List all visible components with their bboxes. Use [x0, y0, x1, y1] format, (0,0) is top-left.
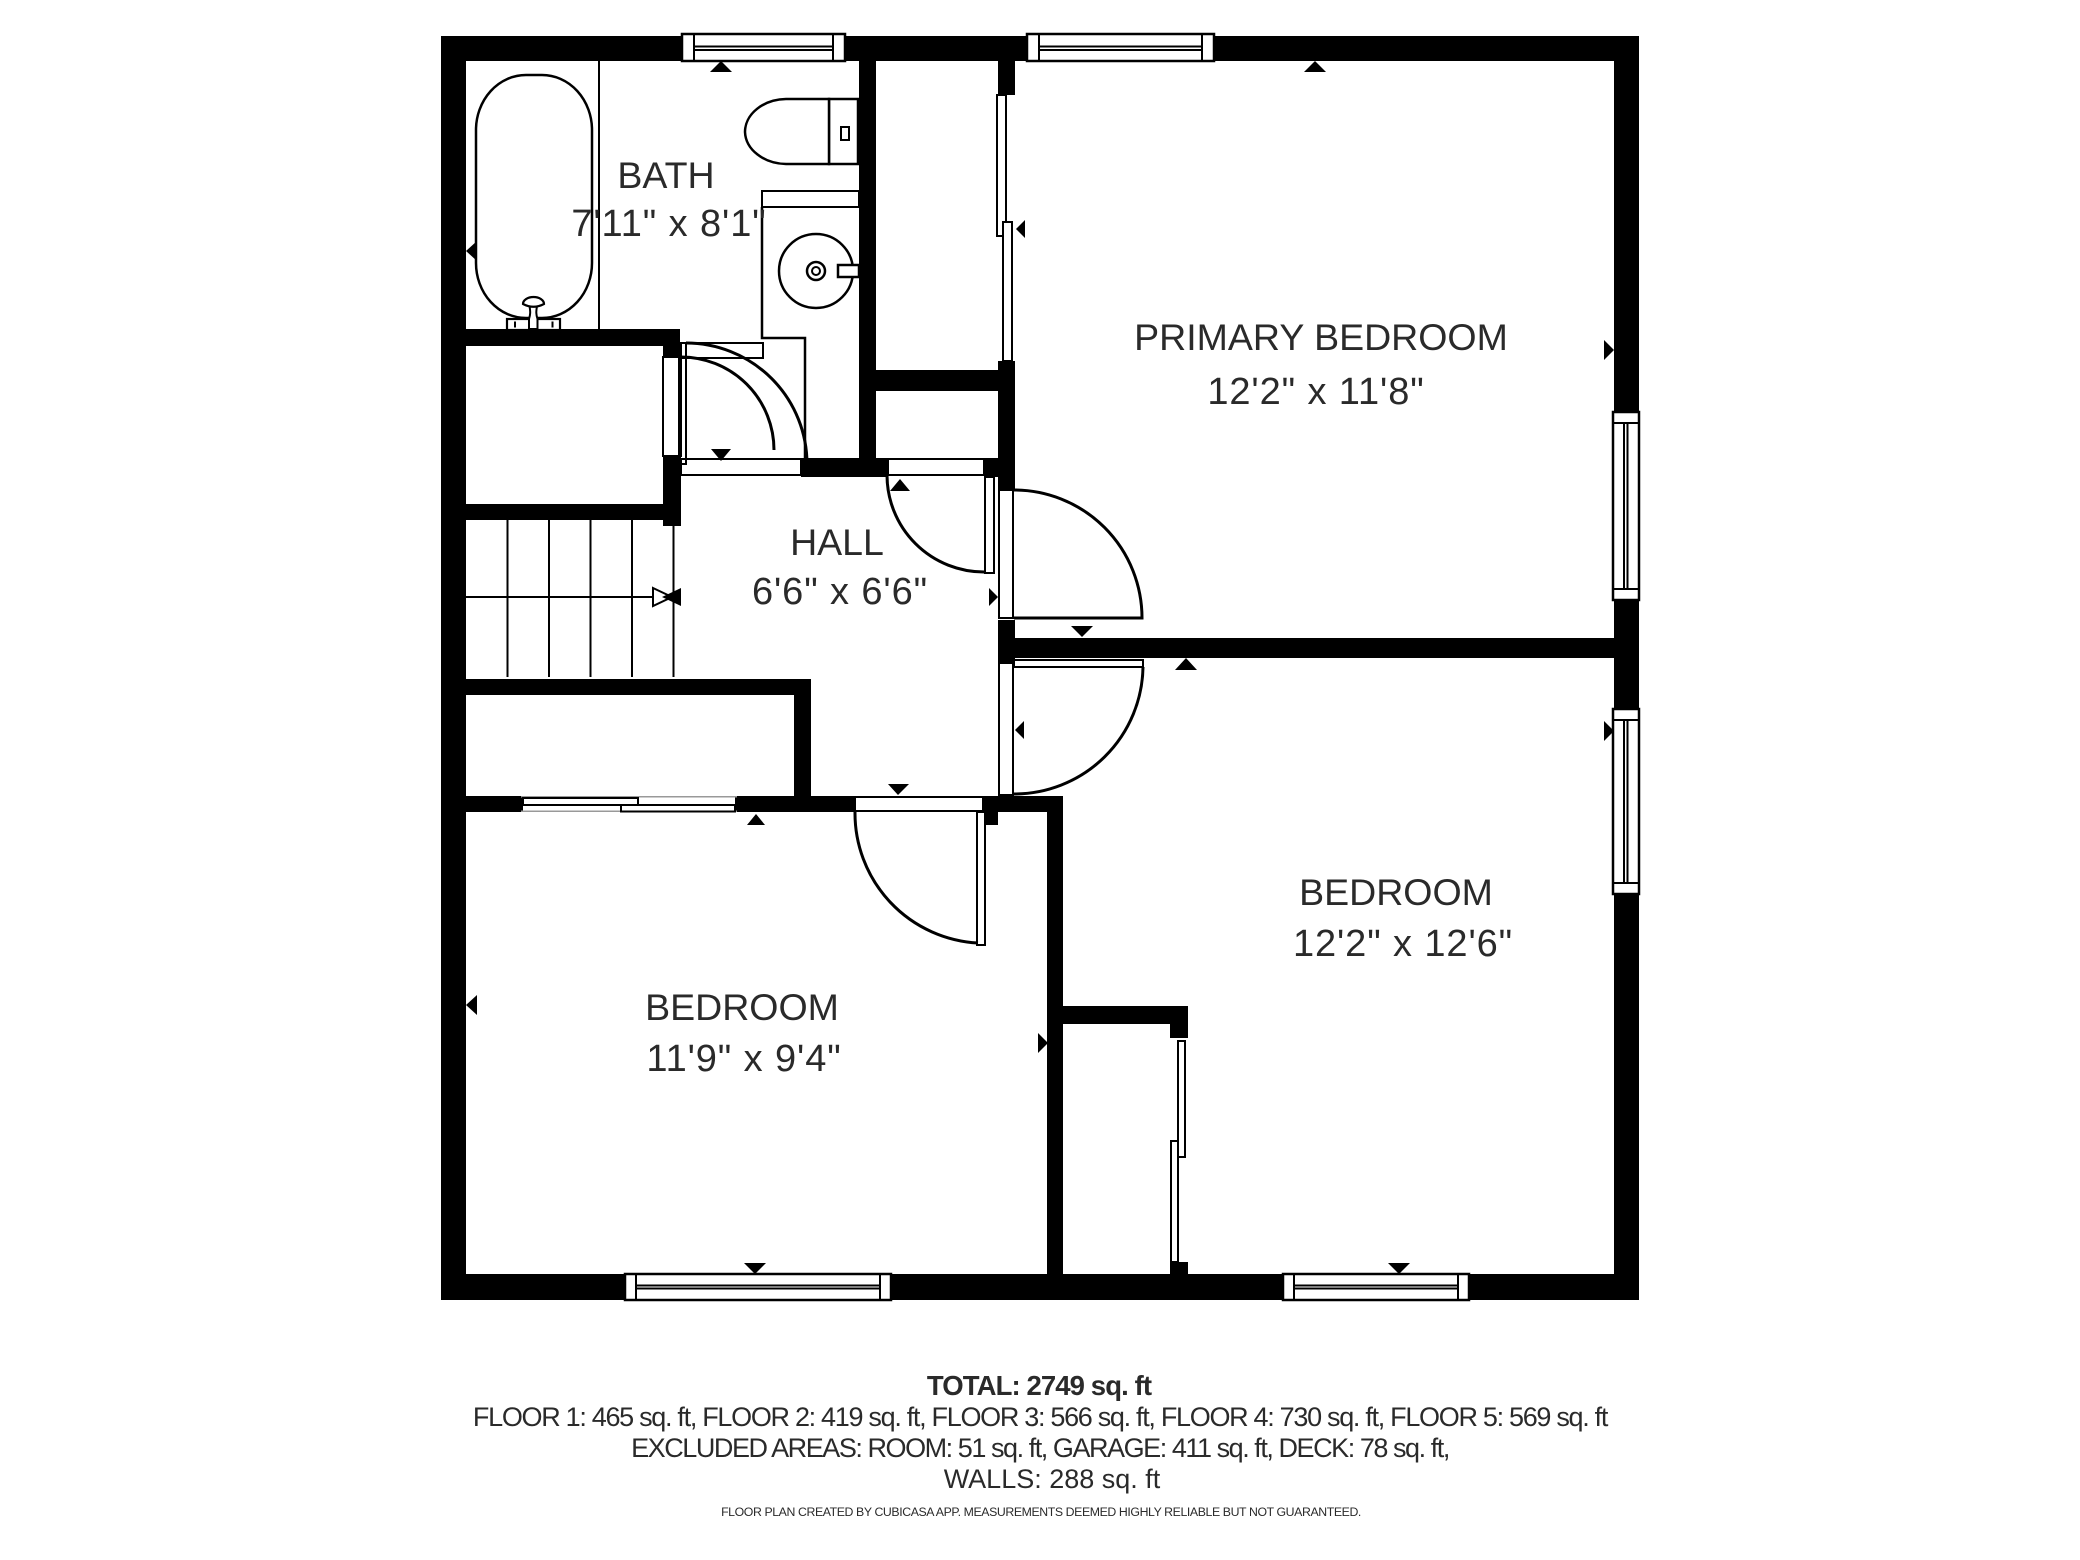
- svg-text:FLOOR PLAN CREATED BY CUBICASA: FLOOR PLAN CREATED BY CUBICASA APP. MEAS…: [721, 1505, 1361, 1519]
- svg-text:BEDROOM: BEDROOM: [645, 986, 839, 1028]
- svg-text:6'6" x 6'6": 6'6" x 6'6": [752, 571, 928, 613]
- svg-text:EXCLUDED AREAS: ROOM: 51 sq. f: EXCLUDED AREAS: ROOM: 51 sq. ft, GARAGE:…: [631, 1433, 1449, 1463]
- svg-text:WALLS: 288 sq. ft: WALLS: 288 sq. ft: [944, 1464, 1161, 1494]
- svg-text:BEDROOM: BEDROOM: [1299, 871, 1493, 913]
- svg-text:12'2" x 11'8": 12'2" x 11'8": [1207, 371, 1424, 413]
- svg-text:BATH: BATH: [617, 154, 714, 196]
- svg-text:PRIMARY BEDROOM: PRIMARY BEDROOM: [1134, 316, 1508, 358]
- svg-text:FLOOR 1: 465 sq. ft, FLOOR 2:: FLOOR 1: 465 sq. ft, FLOOR 2: 419 sq. ft…: [473, 1402, 1609, 1432]
- svg-text:12'2" x 12'6": 12'2" x 12'6": [1293, 923, 1513, 965]
- svg-text:HALL: HALL: [790, 521, 884, 563]
- svg-text:11'9" x 9'4": 11'9" x 9'4": [646, 1038, 841, 1080]
- svg-text:TOTAL: 2749 sq. ft: TOTAL: 2749 sq. ft: [927, 1370, 1152, 1401]
- svg-text:7'11" x 8'1": 7'11" x 8'1": [571, 203, 766, 245]
